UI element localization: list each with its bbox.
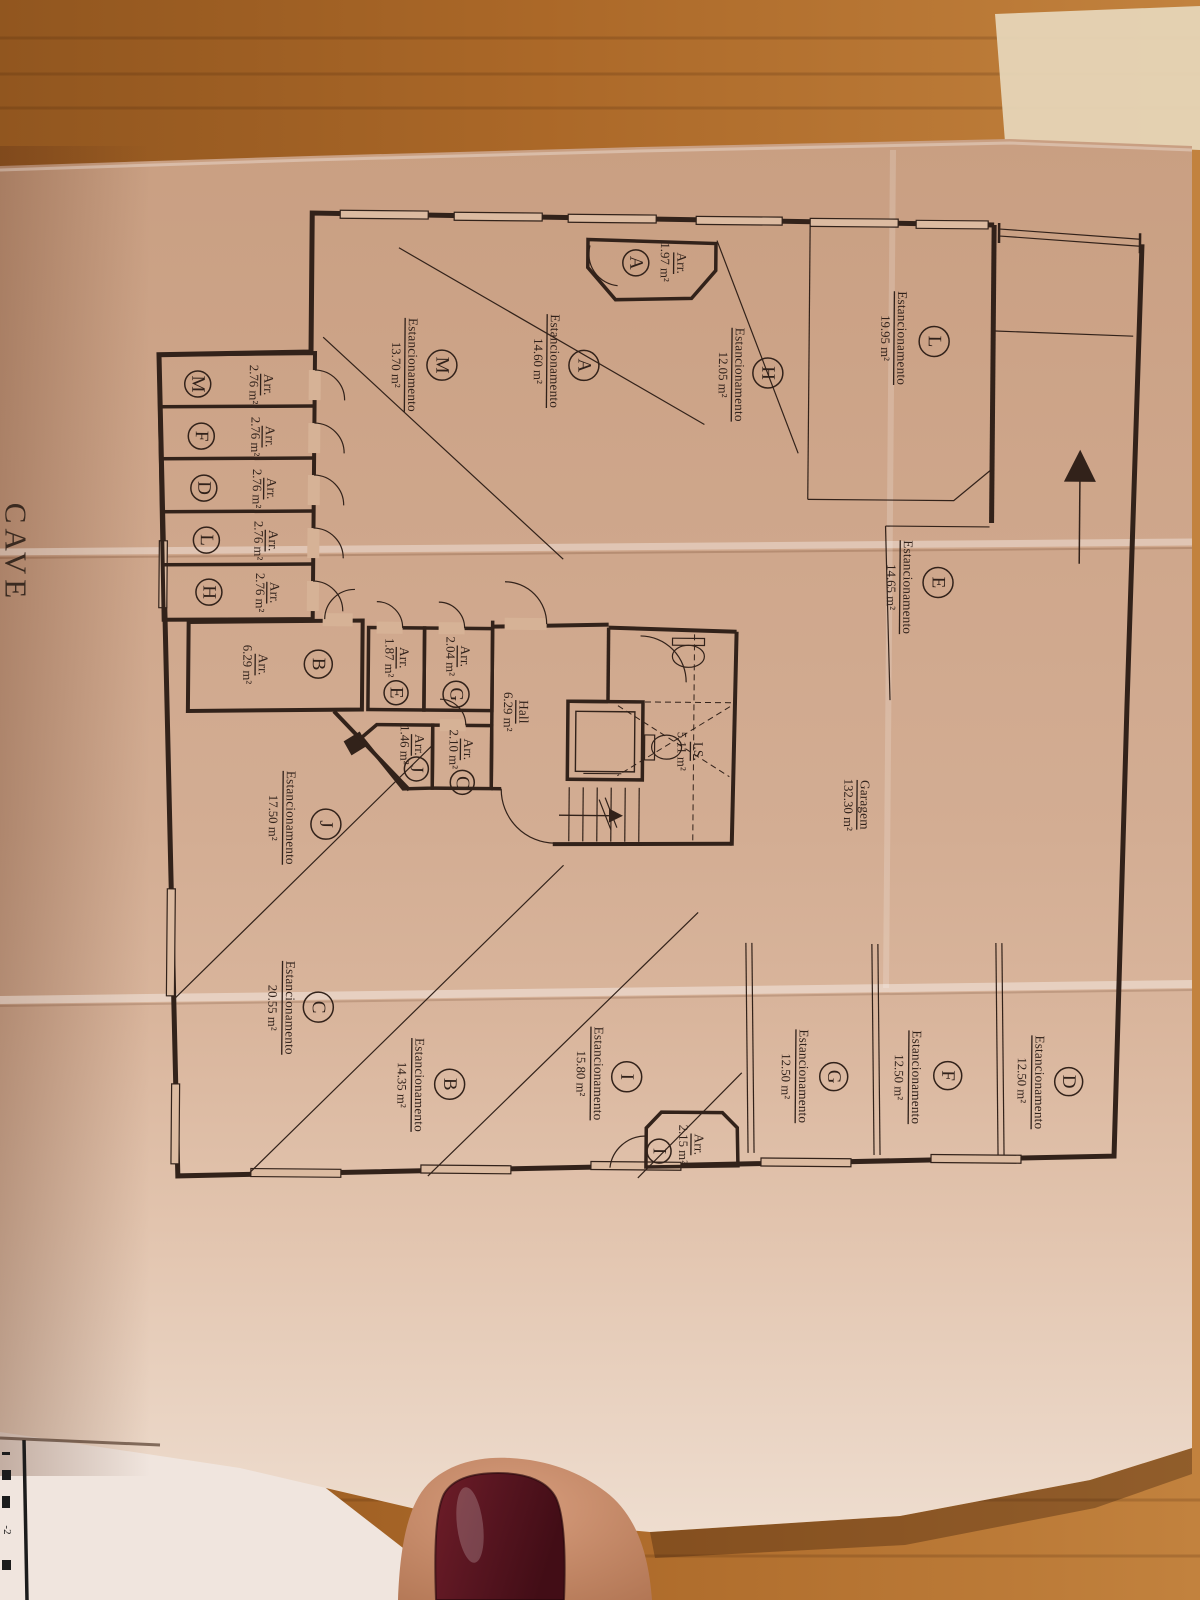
svg-text:20.55 m²: 20.55 m² — [265, 985, 279, 1031]
svg-text:J: J — [406, 765, 427, 773]
svg-text:15.80 m²: 15.80 m² — [574, 1050, 588, 1096]
svg-text:14.65 m²: 14.65 m² — [884, 564, 898, 610]
svg-text:12.05 m²: 12.05 m² — [716, 352, 730, 398]
svg-text:D: D — [193, 481, 214, 495]
svg-text:6.29 m²: 6.29 m² — [240, 645, 254, 685]
svg-text:E: E — [386, 687, 407, 699]
svg-text:2.15 m²: 2.15 m² — [676, 1125, 690, 1165]
svg-text:2.10 m²: 2.10 m² — [446, 730, 460, 770]
plan-paper — [0, 139, 1192, 1532]
svg-text:B: B — [439, 1078, 460, 1091]
svg-text:Arr.: Arr. — [264, 478, 279, 500]
svg-text:A: A — [625, 256, 646, 270]
svg-text:F: F — [937, 1070, 958, 1081]
room-area: 19.95 m² — [878, 315, 892, 361]
svg-text:Arr.: Arr. — [397, 647, 412, 669]
svg-text:B: B — [308, 658, 329, 671]
svg-text:Garagem: Garagem — [857, 780, 872, 830]
svg-text:12.50 m²: 12.50 m² — [1014, 1057, 1028, 1103]
svg-text:Estancionamento: Estancionamento — [405, 318, 421, 412]
svg-text:F: F — [191, 431, 212, 442]
svg-text:14.35 m²: 14.35 m² — [394, 1062, 408, 1108]
svg-text:14.60 m²: 14.60 m² — [531, 338, 545, 384]
svg-text:2.04 m²: 2.04 m² — [443, 637, 457, 677]
svg-text:Estancionamento: Estancionamento — [732, 328, 748, 422]
svg-text:2.76 m²: 2.76 m² — [247, 365, 261, 405]
letter: L — [924, 336, 945, 348]
svg-text:2.76 m²: 2.76 m² — [253, 573, 267, 613]
svg-text:D: D — [1058, 1075, 1079, 1089]
svg-text:13.70 m²: 13.70 m² — [389, 342, 403, 388]
svg-text:Estancionamento: Estancionamento — [282, 961, 298, 1055]
under-sheet-fragment: -2 — [1, 1525, 13, 1534]
sheet-title: CAVE — [0, 503, 34, 603]
svg-text:L: L — [196, 534, 217, 546]
table-highlight — [995, 6, 1200, 150]
svg-text:1.87 m²: 1.87 m² — [382, 638, 396, 678]
svg-text:Arr.: Arr. — [261, 374, 276, 396]
svg-text:6.29 m²: 6.29 m² — [501, 692, 515, 732]
svg-text:Arr.: Arr. — [458, 645, 473, 667]
svg-text:H: H — [198, 585, 219, 599]
svg-text:C: C — [452, 776, 473, 789]
ramp-corridor-wall — [992, 225, 995, 523]
svg-text:Arr.: Arr. — [267, 582, 282, 604]
svg-text:Estancionamento: Estancionamento — [283, 771, 299, 865]
svg-text:Estancionamento: Estancionamento — [909, 1030, 925, 1124]
svg-text:Arr.: Arr. — [692, 1134, 707, 1156]
svg-text:Arr.: Arr. — [412, 734, 427, 756]
svg-text:M: M — [187, 375, 208, 392]
svg-text:5.11 m²: 5.11 m² — [674, 732, 688, 771]
room-label: Estancionamento — [894, 291, 910, 385]
svg-text:2.76 m²: 2.76 m² — [250, 469, 264, 509]
svg-text:Arr.: Arr. — [263, 426, 278, 448]
floor-plan-photo-canvas: Estancionamento 19.95 m² L Estancionamen… — [0, 0, 1200, 1600]
svg-text:A: A — [573, 358, 594, 372]
svg-text:2.76 m²: 2.76 m² — [248, 417, 262, 457]
svg-text:I: I — [616, 1074, 637, 1081]
svg-text:Estancionamento: Estancionamento — [1032, 1035, 1048, 1129]
svg-text:17.50 m²: 17.50 m² — [266, 795, 280, 841]
paper-left-shade — [0, 146, 150, 1476]
svg-text:C: C — [308, 1001, 329, 1014]
svg-text:1.97 m²: 1.97 m² — [658, 242, 672, 282]
svg-text:2.76 m²: 2.76 m² — [251, 521, 265, 561]
svg-text:E: E — [927, 577, 948, 589]
svg-text:Arr.: Arr. — [461, 739, 476, 761]
svg-text:Estancionamento: Estancionamento — [412, 1038, 428, 1132]
svg-text:132.30 m²: 132.30 m² — [841, 779, 855, 831]
svg-text:Estancionamento: Estancionamento — [591, 1027, 607, 1121]
svg-text:Estancionamento: Estancionamento — [547, 314, 563, 408]
svg-text:Estancionamento: Estancionamento — [796, 1029, 812, 1123]
svg-text:12.50 m²: 12.50 m² — [779, 1053, 793, 1099]
svg-text:Arr.: Arr. — [256, 654, 271, 676]
svg-text:M: M — [431, 357, 452, 374]
svg-text:Hall: Hall — [516, 700, 531, 724]
svg-text:G: G — [823, 1070, 844, 1084]
svg-text:I: I — [649, 1148, 670, 1155]
svg-text:12.50 m²: 12.50 m² — [892, 1054, 906, 1100]
svg-text:Arr.: Arr. — [674, 252, 689, 274]
svg-text:H: H — [757, 366, 778, 380]
svg-text:Estancionamento: Estancionamento — [900, 540, 916, 634]
svg-text:I.S.: I.S. — [691, 742, 706, 761]
svg-text:G: G — [445, 687, 466, 701]
svg-text:Arr.: Arr. — [266, 530, 281, 552]
photo-of-floor-plan: Estancionamento 19.95 m² L Estancionamen… — [0, 0, 1200, 1600]
svg-text:J: J — [315, 820, 336, 828]
fingernail — [435, 1473, 564, 1600]
